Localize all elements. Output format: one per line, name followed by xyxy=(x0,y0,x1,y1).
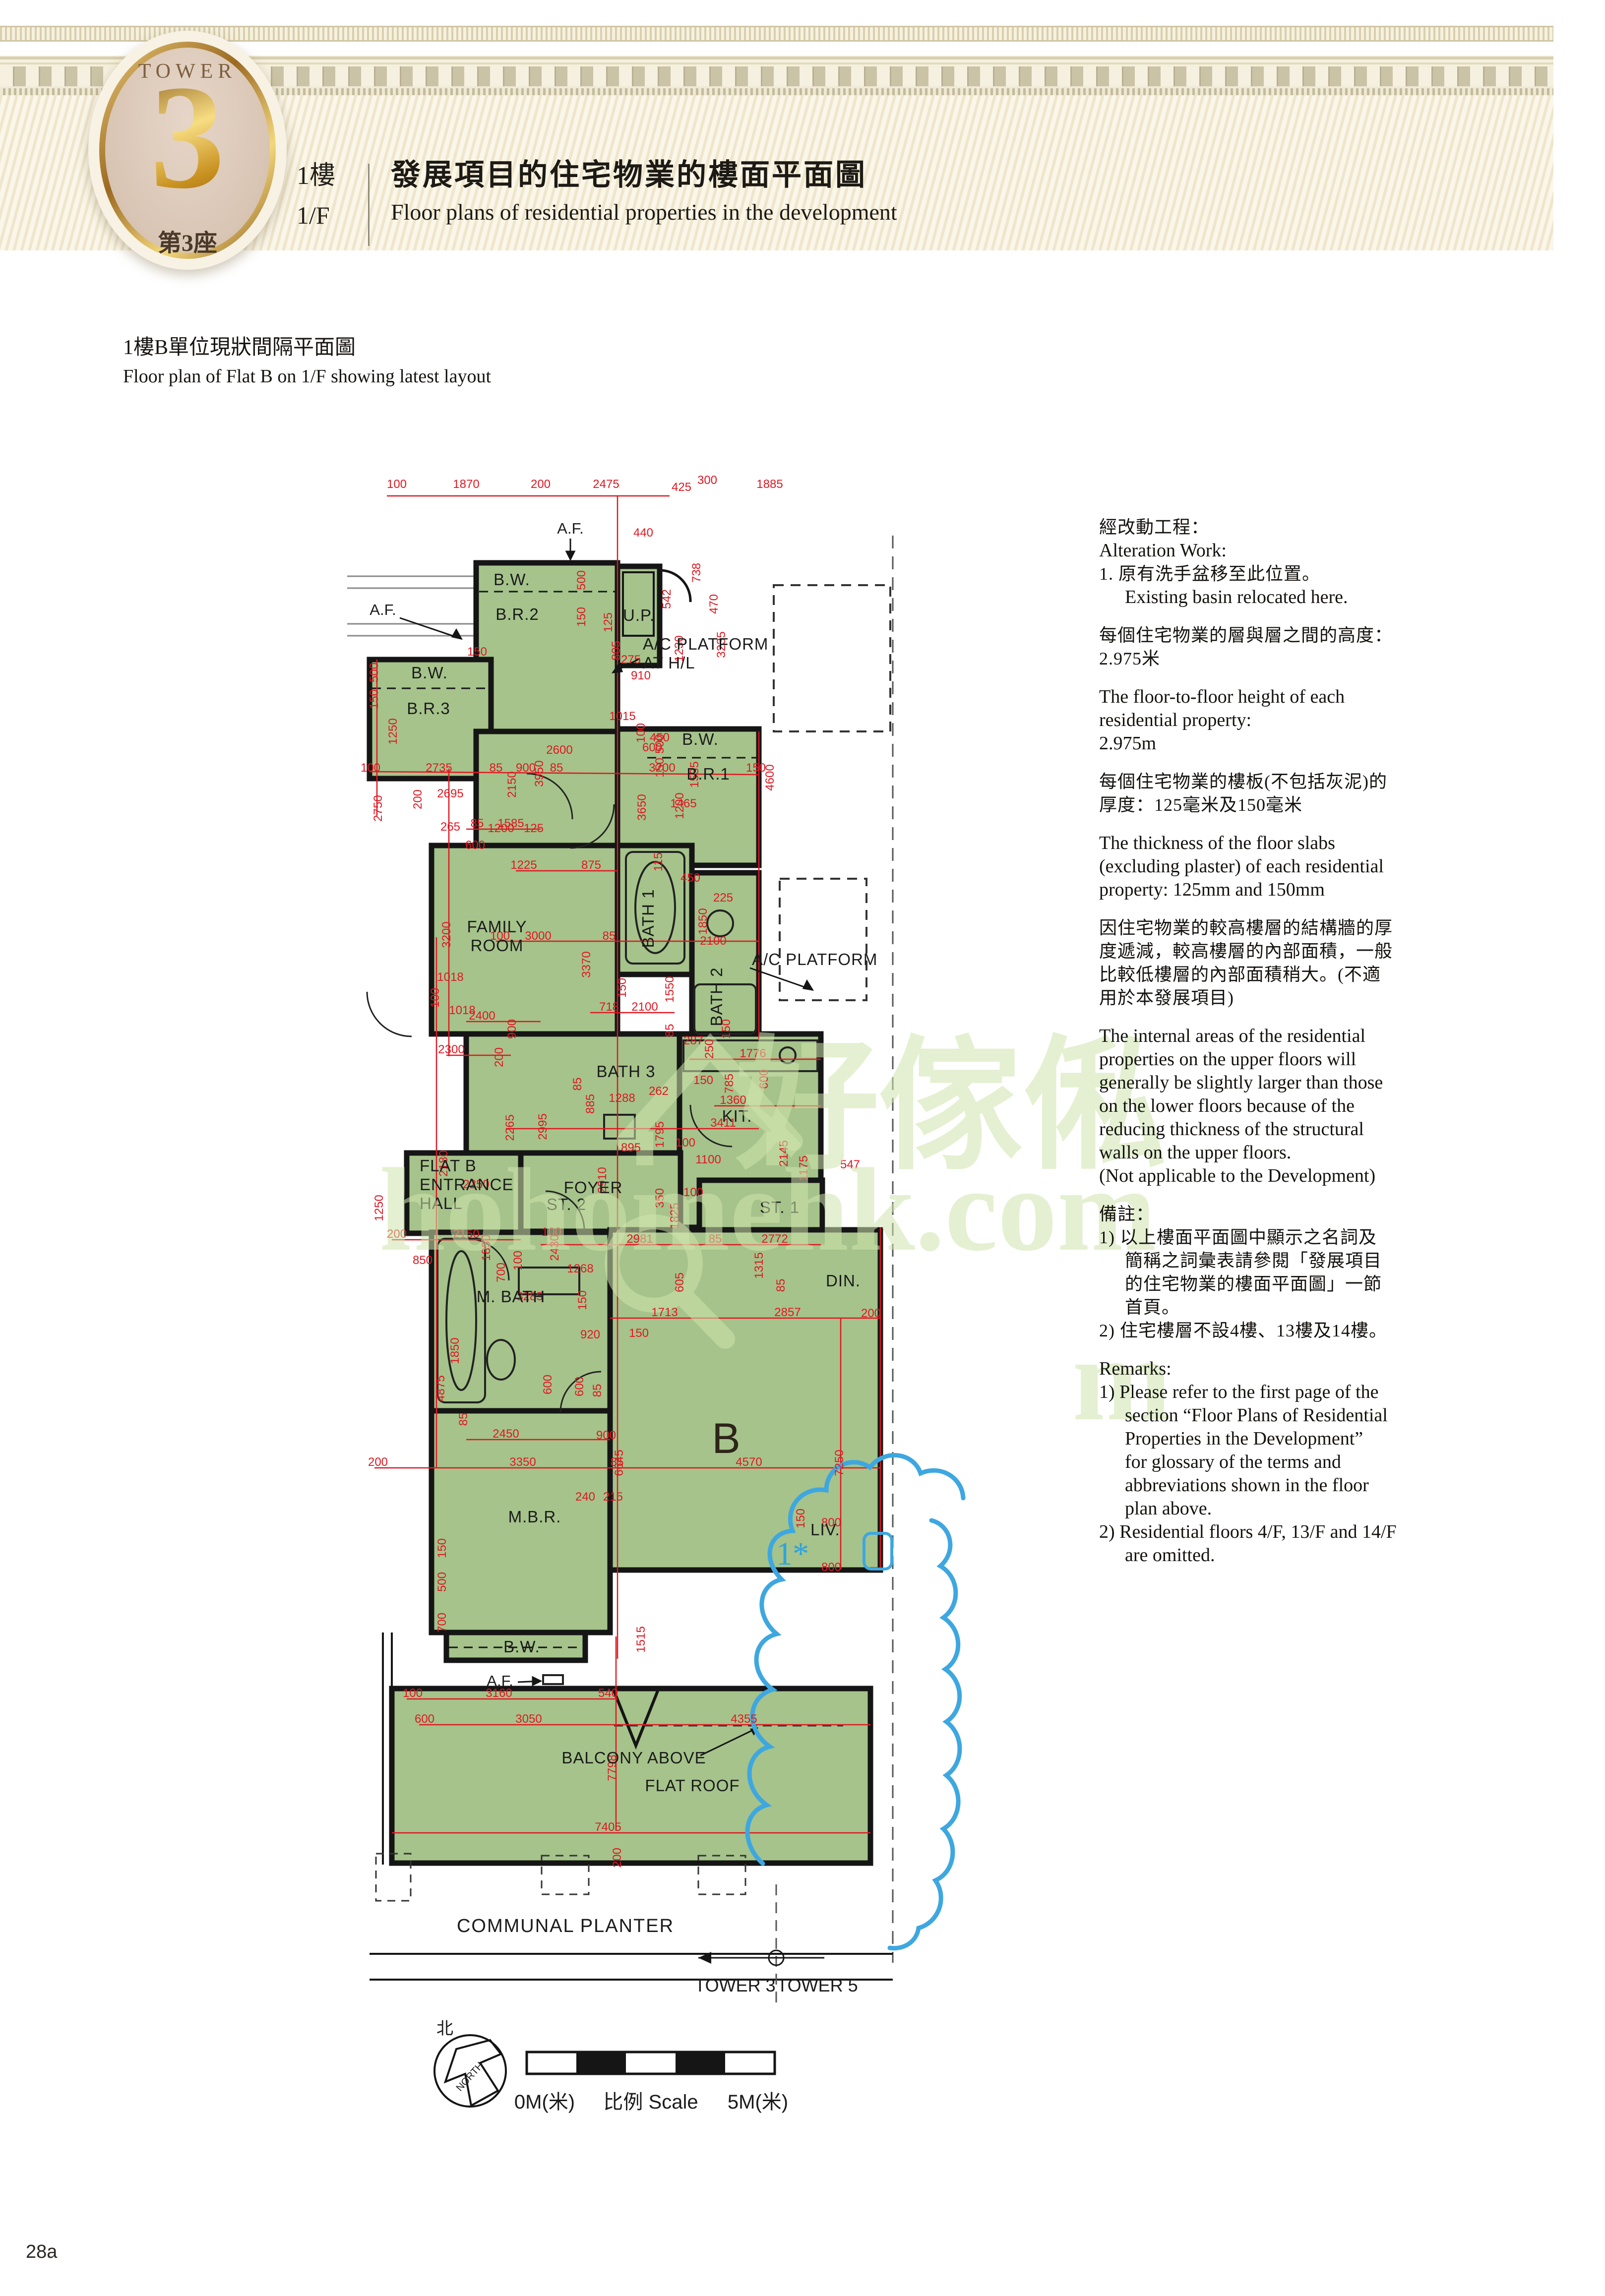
plan-label: COMMUNAL PLANTER xyxy=(457,1916,674,1936)
notes-line: 度遞減，較高樓層的內部面積，一般 xyxy=(1099,940,1575,963)
notes-column: 經改動工程：Alteration Work:1. 原有洗手盆移至此位置。Exis… xyxy=(1099,516,1575,1567)
dimension-label: 85 xyxy=(663,1024,677,1037)
dimension-label: 85 xyxy=(591,1384,604,1397)
dimension-label: 150 xyxy=(653,758,667,778)
notes-line: The thickness of the floor slabs xyxy=(1099,832,1575,855)
dimension-label: 885 xyxy=(584,1094,597,1114)
plan-label: A.F. xyxy=(370,601,396,618)
dimension-label: 3370 xyxy=(580,951,593,977)
notes-line: are omitted. xyxy=(1099,1544,1575,1567)
notes-line: 厚度：125毫米及150毫米 xyxy=(1099,793,1575,817)
dimension-label: 2600 xyxy=(546,743,572,757)
dimension-label: 85 xyxy=(471,817,484,830)
dimension-label: 500 xyxy=(575,570,588,590)
plan-label: U.P. xyxy=(623,606,655,624)
dimension-label: 500 xyxy=(435,1572,449,1592)
dimension-label: 100 xyxy=(634,723,648,743)
dimension-label: 2475 xyxy=(593,478,619,491)
dimension-label: 1850 xyxy=(696,908,710,934)
dimension-label: 1225 xyxy=(510,858,537,872)
dimension-label: 262 xyxy=(649,1085,669,1098)
plan-label: FAMILYROOM xyxy=(467,917,527,955)
dimension-label: 150 xyxy=(467,645,487,659)
notes-line: 2) 住宅樓層不設4樓、13樓及14樓。 xyxy=(1099,1319,1575,1342)
dimension-label: 1515 xyxy=(634,1626,648,1652)
dimension-label: 265 xyxy=(440,820,460,834)
notes-line: (Not applicable to the Development) xyxy=(1099,1164,1575,1188)
dimension-label: 100 xyxy=(403,1687,423,1700)
dimension-label: 600 xyxy=(415,1712,434,1726)
notes-line: 首頁。 xyxy=(1099,1296,1575,1319)
notes-spacer xyxy=(1099,817,1575,832)
dimension-label: 600 xyxy=(541,1375,555,1394)
notes-line: 因住宅物業的較高樓層的結構牆的厚 xyxy=(1099,916,1575,940)
dimension-label: 1200 xyxy=(673,792,686,819)
dimension-label: 85 xyxy=(457,1413,470,1426)
notes-spacer xyxy=(1099,902,1575,916)
dimension-label: 100 xyxy=(429,988,442,1008)
dimension-label: 2150 xyxy=(505,771,519,797)
notes-line: Existing basin relocated here. xyxy=(1099,586,1575,609)
ac-platforms xyxy=(774,585,890,1000)
dimension-label: 250 xyxy=(703,1039,716,1059)
dimension-label: 800 xyxy=(821,1561,841,1574)
plan-label: LIV. xyxy=(810,1520,840,1539)
dimension-label: 200 xyxy=(861,1307,881,1320)
notes-line: generally be slightly larger than those xyxy=(1099,1071,1575,1094)
notes-line: The internal areas of the residential xyxy=(1099,1025,1575,1048)
notes-line: for glossary of the terms and xyxy=(1099,1450,1575,1474)
notes-line: 1. 原有洗手盆移至此位置。 xyxy=(1099,562,1575,586)
notes-line: 2) Residential floors 4/F, 13/F and 14/F xyxy=(1099,1520,1575,1544)
notes-spacer xyxy=(1099,1010,1575,1025)
ac-platform-hl-outline xyxy=(774,585,890,731)
notes-line: Alteration Work: xyxy=(1099,539,1575,562)
dimension-label: 3050 xyxy=(515,1712,542,1726)
plan-label: B.W. xyxy=(494,570,530,589)
dimension-label: 785 xyxy=(723,1074,736,1093)
dimension-label: 240 xyxy=(575,1490,595,1504)
dimension-label: 3200 xyxy=(440,921,453,948)
dimension-label: 200 xyxy=(493,1047,506,1067)
plan-label: BATH 1 xyxy=(639,889,657,948)
plan-label: BALCONY ABOVE xyxy=(561,1749,706,1767)
site-lines xyxy=(347,576,475,636)
dimension-label: 85 xyxy=(490,761,503,775)
plan-label: FLAT ROOF xyxy=(645,1776,740,1795)
dimension-label: 1250 xyxy=(386,718,400,744)
notes-line: Remarks: xyxy=(1099,1357,1575,1381)
notes-line: 1) Please refer to the first page of the xyxy=(1099,1381,1575,1404)
notes-line: 用於本發展項目) xyxy=(1099,986,1575,1010)
notes-line: property: 125mm and 150mm xyxy=(1099,878,1575,902)
dimension-label: 7250 xyxy=(833,1450,846,1476)
notes-line: 備註： xyxy=(1099,1203,1575,1226)
dimension-label: 1885 xyxy=(756,478,783,491)
ac-platform-outline xyxy=(780,879,866,1000)
dimension-label: 470 xyxy=(707,594,721,614)
dimension-label: 200 xyxy=(531,478,551,491)
plan-label: 北 xyxy=(436,2019,453,2038)
notes-line: 每個住宅物業的樓板(不包括灰泥)的 xyxy=(1099,770,1575,793)
dimension-label: 2100 xyxy=(631,1000,658,1014)
dimension-label: 500 xyxy=(368,663,381,682)
plan-label: TOWER 5 xyxy=(777,1975,858,1995)
notes-line: abbreviations shown in the floor xyxy=(1099,1474,1575,1497)
dimension-label: 3950 xyxy=(533,760,546,786)
notes-spacer xyxy=(1099,1342,1575,1357)
dimension-label: 700 xyxy=(435,1613,449,1632)
dimension-label: 215 xyxy=(603,1490,623,1504)
notes-line: 經改動工程： xyxy=(1099,516,1575,539)
plan-label: B.R.2 xyxy=(495,605,539,623)
plan-label: B.W. xyxy=(682,730,719,748)
dimension-label: 600 xyxy=(573,1377,586,1396)
dimension-label: 100 xyxy=(387,478,407,491)
dimension-label: 125 xyxy=(524,822,544,835)
plan-label: B.R.3 xyxy=(407,699,450,718)
dimension-label: 600 xyxy=(465,839,485,852)
notes-line: residential property: xyxy=(1099,709,1575,732)
plan-label: A.F. xyxy=(557,520,583,537)
dimension-label: 920 xyxy=(580,1328,600,1341)
dimension-label: 1015 xyxy=(609,710,635,723)
plan-label: M. BATH xyxy=(477,1287,545,1306)
notes-line: 2.975米 xyxy=(1099,647,1575,670)
plan-label: BATH 2 xyxy=(707,967,726,1026)
dimension-label: 200 xyxy=(368,1455,388,1469)
dimension-label: 4875 xyxy=(434,1375,447,1401)
page-number: 28a xyxy=(26,2241,57,2263)
dimension-label: 738 xyxy=(690,563,703,583)
dimension-label: 1288 xyxy=(609,1091,635,1105)
notes-line: 比較低樓層的內部面積稍大。(不適 xyxy=(1099,963,1575,986)
scale-bar xyxy=(527,2052,775,2074)
dimension-label: 150 xyxy=(616,978,629,998)
plan-label: 0M(米) xyxy=(514,2091,575,2113)
dimension-label: 7405 xyxy=(595,1820,621,1834)
plan-label: TOWER 3 xyxy=(694,1975,775,1995)
notes-line: The floor-to-floor height of each xyxy=(1099,685,1575,709)
dimension-label: 4355 xyxy=(731,1712,757,1726)
dimension-label: 85 xyxy=(571,1078,584,1091)
dimension-label: 1870 xyxy=(453,478,479,491)
af-fixture xyxy=(543,1675,563,1684)
dimension-label: 1713 xyxy=(651,1306,678,1319)
plan-label: 5M(米) xyxy=(728,2091,788,2113)
plan-label: B.W. xyxy=(503,1637,540,1656)
dimension-label: 125 xyxy=(602,612,615,632)
dimension-label: 2995 xyxy=(536,1113,550,1140)
notes-line: on the lower floors because of the xyxy=(1099,1094,1575,1118)
dimension-label: 440 xyxy=(633,526,653,540)
plan-label: A.F. xyxy=(487,1672,513,1690)
dimension-label: 2100 xyxy=(700,934,726,948)
plan-label: B xyxy=(712,1415,740,1462)
dimension-label: 225 xyxy=(713,891,733,905)
plan-label: A/C PLATFORM xyxy=(752,950,877,968)
dimension-label: 1550 xyxy=(663,976,677,1002)
dimension-label: 300 xyxy=(697,474,717,487)
notes-spacer xyxy=(1099,609,1575,624)
dimension-label: 150 xyxy=(576,1290,589,1310)
dimension-label: 542 xyxy=(660,589,674,609)
dimension-label: 150 xyxy=(794,1509,807,1528)
dimension-label: 85 xyxy=(603,929,616,943)
watermark-text: hohomehk.com xyxy=(379,1144,1157,1275)
dimension-label: 718 xyxy=(599,1000,619,1014)
dimension-label: 3350 xyxy=(509,1455,536,1469)
dimension-label: 425 xyxy=(672,481,691,494)
dimension-label: 450 xyxy=(680,871,700,885)
notes-line: walls on the upper floors. xyxy=(1099,1141,1575,1164)
dimension-label: 1850 xyxy=(448,1337,462,1364)
notes-spacer xyxy=(1099,1188,1575,1203)
dimension-label: 805 xyxy=(610,641,623,661)
dimension-label: 2450 xyxy=(493,1427,519,1441)
plan-label: BATH 3 xyxy=(596,1062,655,1081)
dimension-label: 900 xyxy=(505,1019,519,1039)
notes-line: 簡稱之詞彙表請參閱「發展項目 xyxy=(1099,1249,1575,1272)
dimension-label: 900 xyxy=(596,1429,616,1442)
notes-line: reducing thickness of the structural xyxy=(1099,1118,1575,1141)
dimension-label: 150 xyxy=(368,689,381,709)
dimension-label: 275 xyxy=(621,653,641,666)
dimension-label: 4600 xyxy=(763,764,777,790)
notes-line: 的住宅物業的樓面平面圖」一節 xyxy=(1099,1272,1575,1296)
dimension-label: 100 xyxy=(361,761,380,775)
dimension-label: 2857 xyxy=(774,1306,801,1319)
dimension-label: 1018 xyxy=(437,970,463,984)
dimension-label: 150 xyxy=(575,607,588,627)
dimension-label: 2695 xyxy=(437,787,463,800)
dimension-label: 875 xyxy=(581,858,601,872)
notes-line: properties on the upper floors will xyxy=(1099,1048,1575,1071)
dimension-label: 600 xyxy=(642,741,662,754)
dimension-label: 2735 xyxy=(426,761,452,775)
plan-label: B.R.1 xyxy=(686,765,730,783)
dimension-label: 2400 xyxy=(469,1009,495,1023)
notes-line: 每個住宅物業的層與層之間的高度： xyxy=(1099,624,1575,647)
dimension-label: 3650 xyxy=(635,794,649,820)
plan-label: M.B.R. xyxy=(508,1508,561,1526)
dimension-label: 150 xyxy=(435,1538,449,1558)
plan-label: B.W. xyxy=(411,664,448,682)
dimension-label: 200 xyxy=(411,789,425,809)
notes-line: Properties in the Development” xyxy=(1099,1427,1575,1450)
dimension-label: 3000 xyxy=(525,929,551,943)
dimension-label: 2750 xyxy=(371,795,385,821)
dimension-label: 85 xyxy=(550,761,563,775)
dimension-label: 2300 xyxy=(438,1043,464,1056)
dimension-label: 85 xyxy=(611,1455,624,1469)
dimension-label: 150 xyxy=(693,1074,713,1087)
dimension-label: 1200 xyxy=(488,822,514,835)
notes-line: section “Floor Plans of Residential xyxy=(1099,1404,1575,1427)
plan-label: 比例 Scale xyxy=(603,2091,698,2113)
notes-line: plan above. xyxy=(1099,1497,1575,1520)
notes-line: 2.975m xyxy=(1099,732,1575,755)
dimension-label: 115 xyxy=(652,852,665,871)
plan-label: 1* xyxy=(776,1536,809,1572)
notes-spacer xyxy=(1099,755,1575,770)
flat-roof xyxy=(392,1689,870,1863)
dimension-label: 540 xyxy=(598,1687,618,1700)
dimension-label: 287 xyxy=(683,1034,703,1047)
plan-label: A/C PLATFORMAT H/L xyxy=(643,635,768,672)
dimension-label: 200 xyxy=(611,1848,624,1868)
notes-line: (excluding plaster) of each residential xyxy=(1099,855,1575,878)
dimension-label: 2265 xyxy=(503,1114,517,1141)
dimension-label: 150 xyxy=(629,1327,649,1340)
dimension-label: 85 xyxy=(774,1279,788,1292)
notes-line: 1) 以上樓面平面圖中顯示之名詞及 xyxy=(1099,1226,1575,1249)
notes-spacer xyxy=(1099,670,1575,685)
